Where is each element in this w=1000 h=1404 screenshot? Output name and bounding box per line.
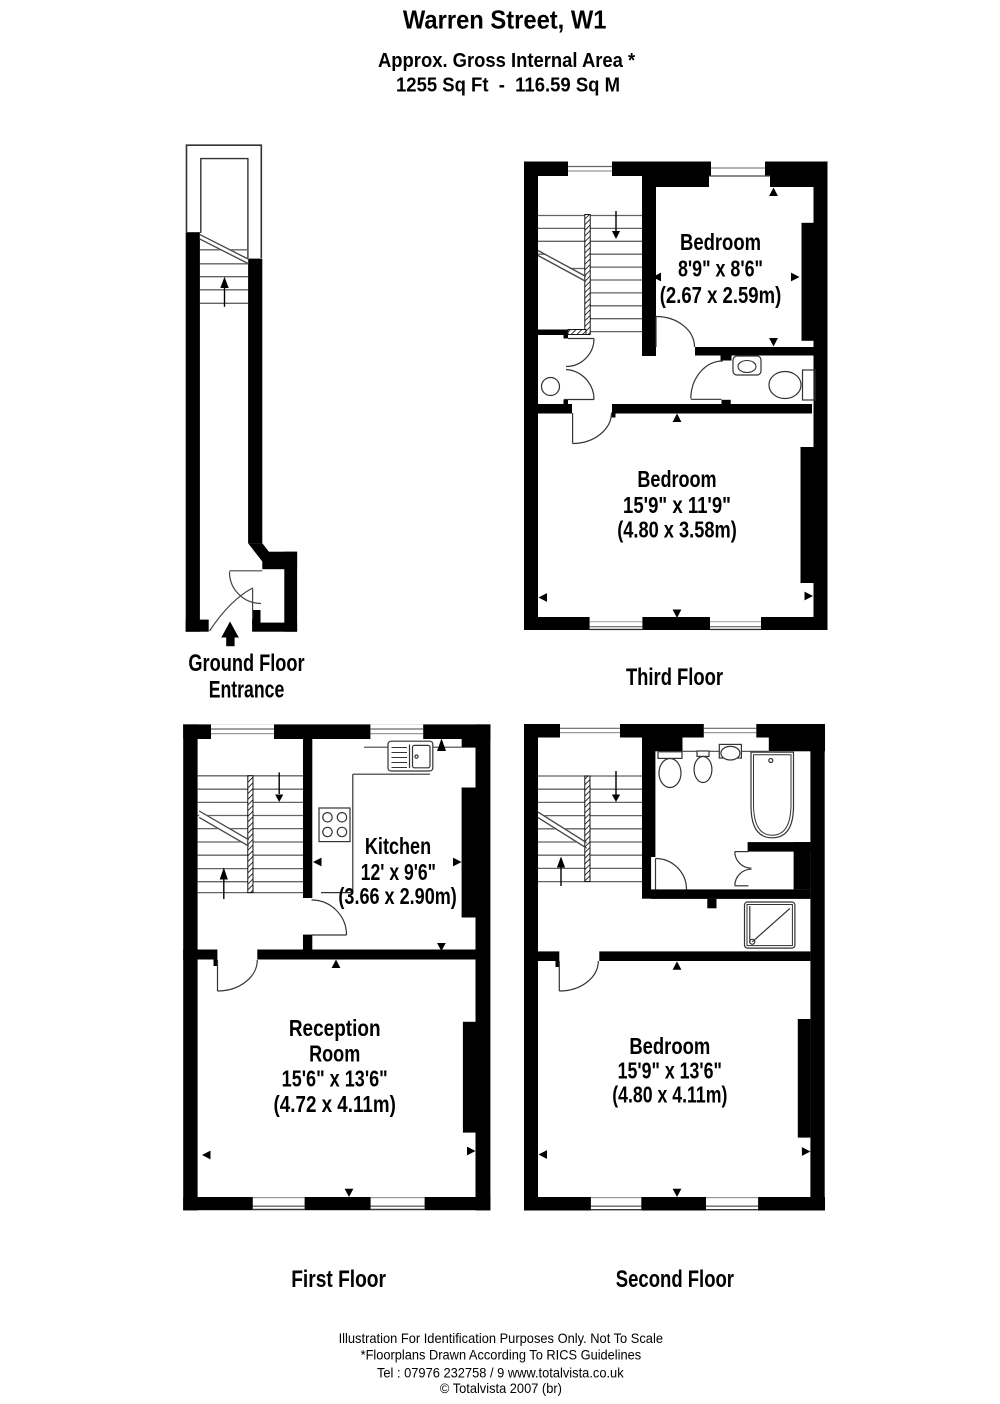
svg-text:(4.72 x 4.11m): (4.72 x 4.11m) — [274, 1091, 396, 1117]
svg-text:Ground Floor: Ground Floor — [188, 650, 304, 677]
svg-text:Illustration For Identificatio: Illustration For Identification Purposes… — [339, 1330, 664, 1346]
svg-text:Kitchen: Kitchen — [365, 833, 431, 859]
svg-text:First Floor: First Floor — [291, 1266, 386, 1293]
svg-text:(4.80 x 3.58m): (4.80 x 3.58m) — [617, 517, 737, 543]
svg-text:Bedroom: Bedroom — [637, 466, 716, 492]
svg-text:© Totalvista 2007 (br): © Totalvista 2007 (br) — [440, 1380, 562, 1396]
svg-text:(2.67 x 2.59m): (2.67 x 2.59m) — [660, 282, 782, 308]
svg-text:15'9" x 13'6": 15'9" x 13'6" — [618, 1057, 722, 1083]
svg-text:15'6" x 13'6": 15'6" x 13'6" — [282, 1066, 388, 1092]
svg-text:*Floorplans Drawn According To: *Floorplans Drawn According To RICS Guid… — [361, 1347, 642, 1363]
svg-text:Tel : 07976 232758 / 9 www.tot: Tel : 07976 232758 / 9 www.totalvista.co… — [377, 1364, 625, 1380]
svg-text:1255 Sq Ft - 116.59 Sq M: 1255 Sq Ft - 116.59 Sq M — [396, 75, 620, 97]
svg-text:Third Floor: Third Floor — [626, 664, 723, 691]
svg-text:Bedroom: Bedroom — [629, 1033, 710, 1059]
svg-text:Entrance: Entrance — [209, 677, 285, 704]
svg-text:Approx. Gross Internal Area *: Approx. Gross Internal Area * — [378, 50, 635, 72]
svg-text:Warren Street, W1: Warren Street, W1 — [403, 5, 607, 35]
svg-text:15'9" x 11'9": 15'9" x 11'9" — [623, 492, 731, 518]
svg-text:Bedroom: Bedroom — [680, 229, 761, 255]
svg-text:8'9" x 8'6": 8'9" x 8'6" — [678, 256, 763, 282]
svg-text:Second Floor: Second Floor — [616, 1266, 734, 1293]
svg-text:Reception: Reception — [289, 1015, 381, 1041]
svg-text:(4.80 x 4.11m): (4.80 x 4.11m) — [612, 1082, 727, 1108]
svg-text:(3.66 x 2.90m): (3.66 x 2.90m) — [338, 883, 456, 909]
svg-text:12' x 9'6": 12' x 9'6" — [361, 859, 436, 885]
svg-text:Room: Room — [309, 1040, 360, 1066]
